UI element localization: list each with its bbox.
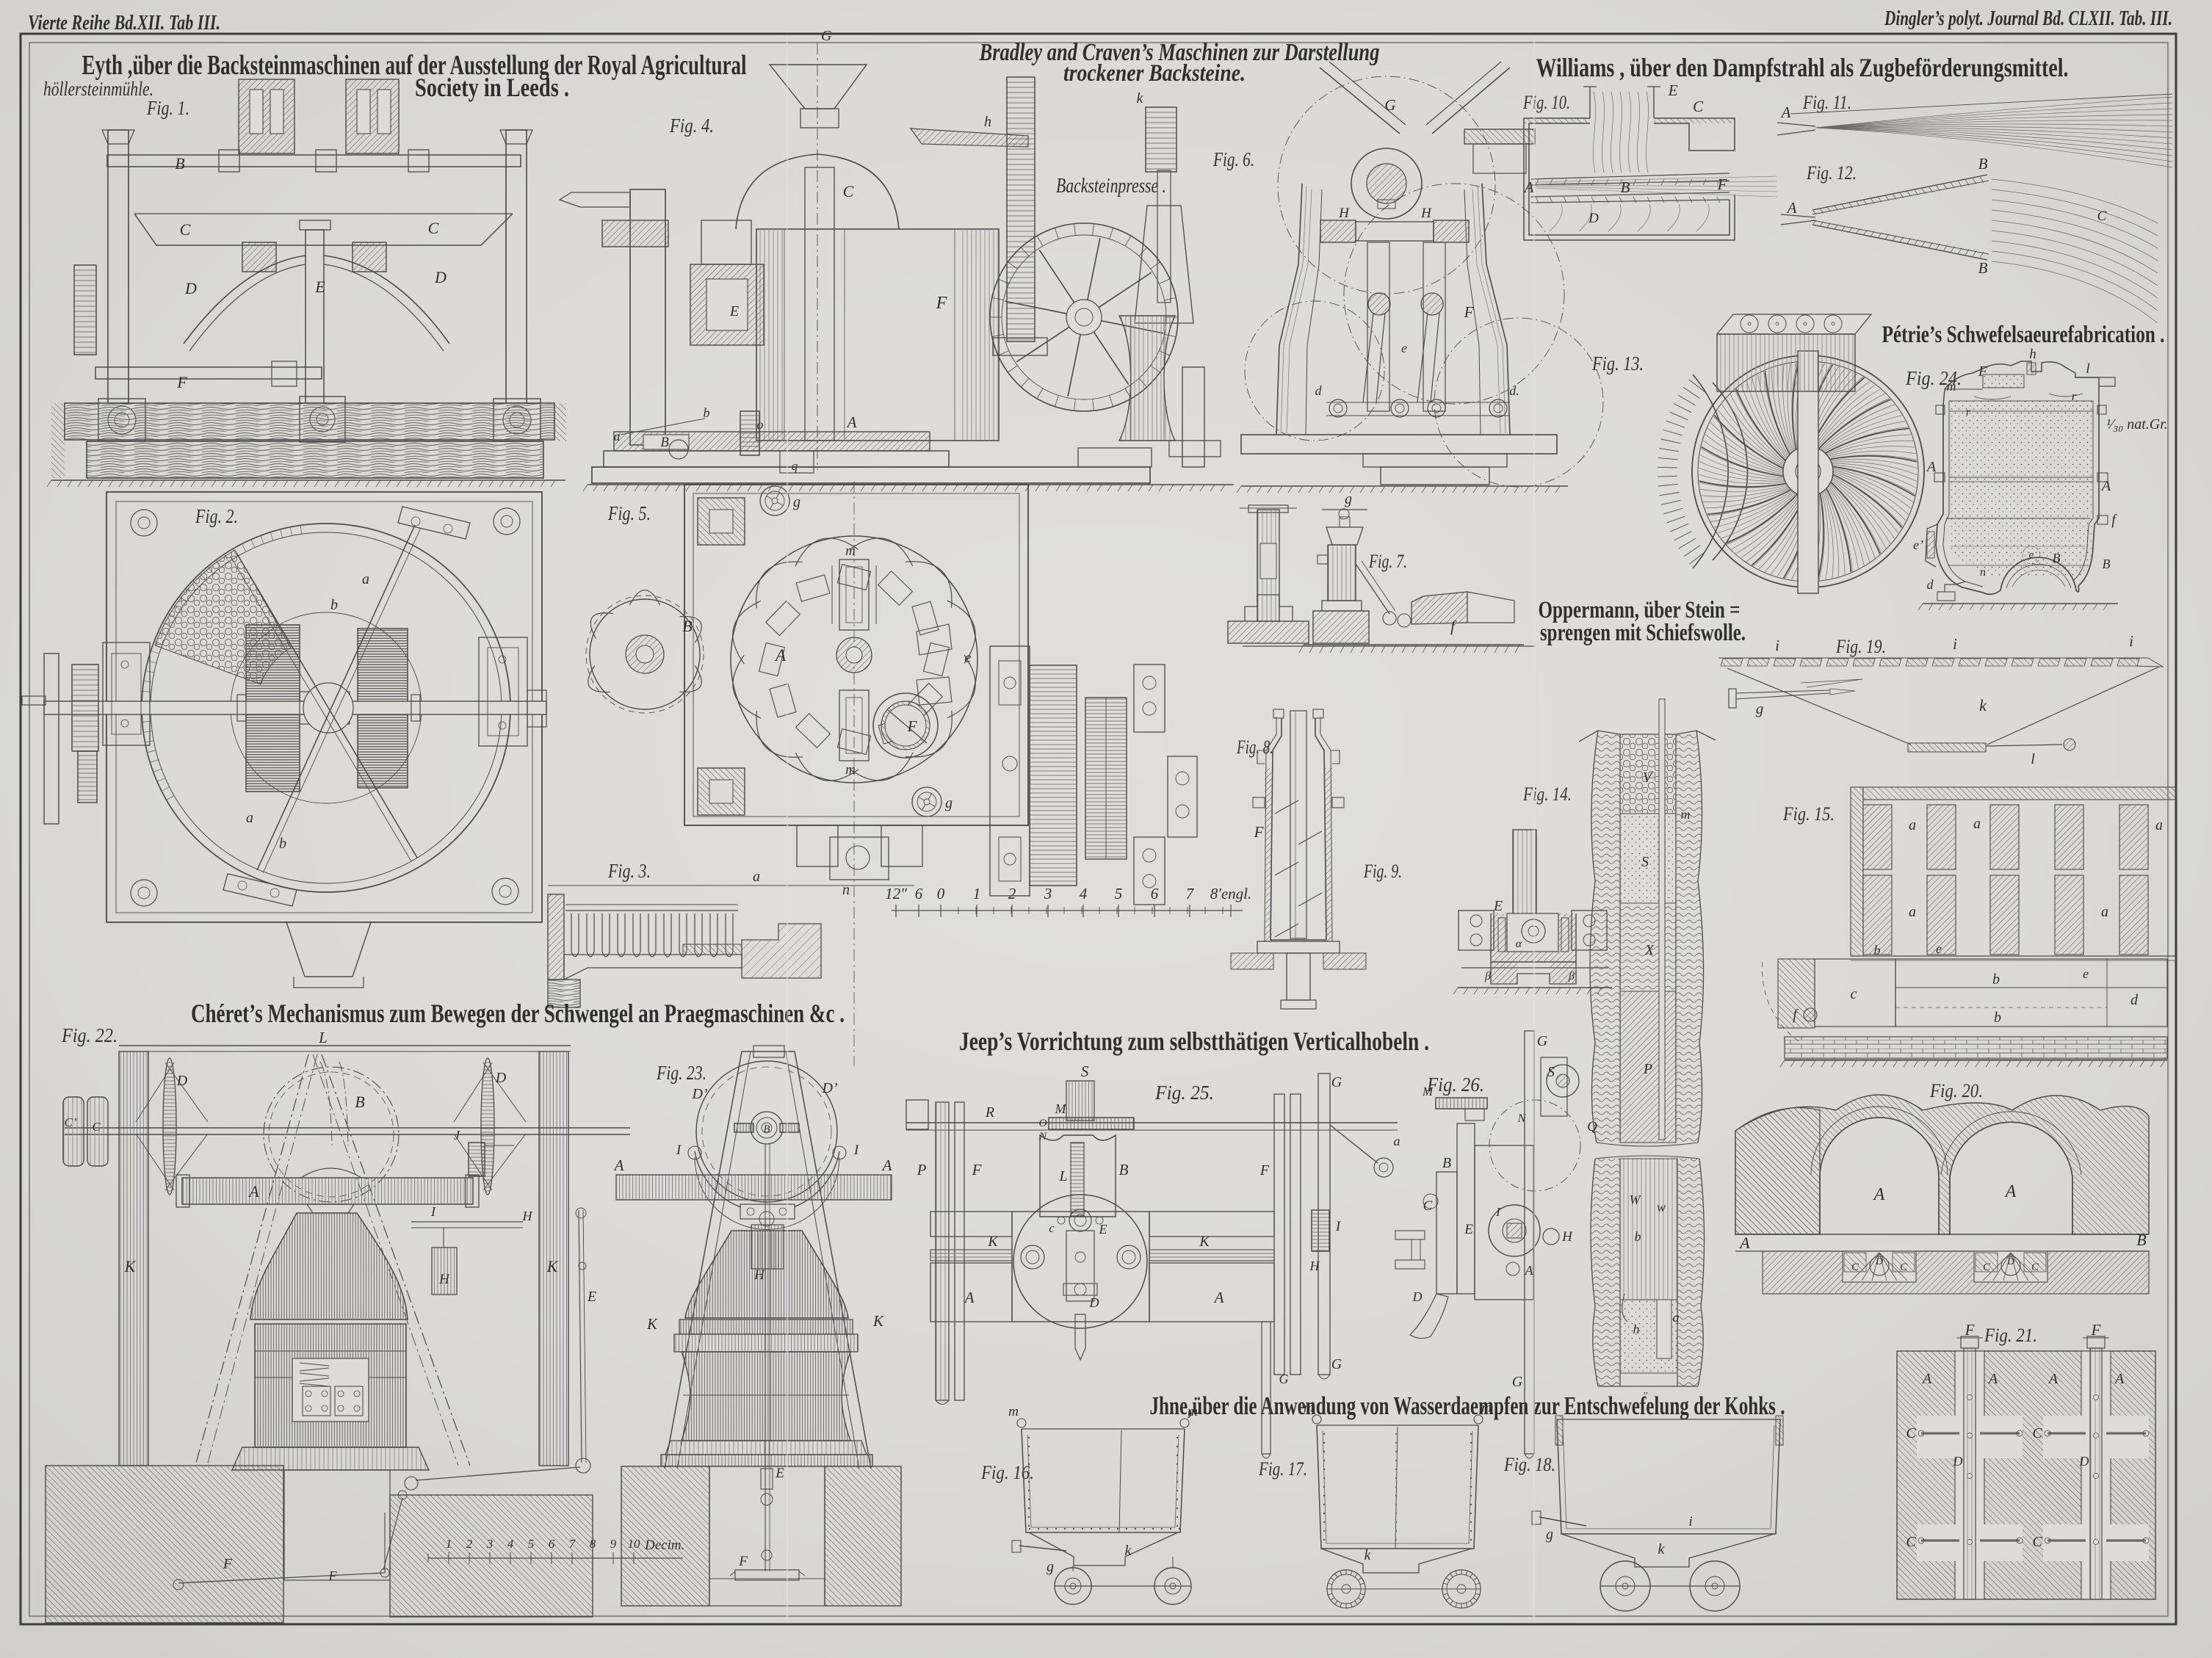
svg-text:A: A <box>1523 178 1534 196</box>
svg-text:D: D <box>1412 1289 1423 1304</box>
svg-text:S: S <box>1547 1064 1555 1080</box>
svg-text:Fig. 23.: Fig. 23. <box>656 1062 706 1084</box>
svg-text:c: c <box>1049 1221 1055 1235</box>
svg-text:Fig. 16.: Fig. 16. <box>980 1462 1034 1483</box>
svg-text:D: D <box>1953 1454 1963 1469</box>
svg-text:E: E <box>1493 898 1503 914</box>
svg-text:c: c <box>1851 986 1857 1002</box>
svg-text:X: X <box>1644 942 1655 958</box>
svg-text:Fig. 2.: Fig. 2. <box>195 505 238 527</box>
svg-text:Backsteinpresse .: Backsteinpresse . <box>1056 175 1166 198</box>
svg-text:C: C <box>1851 1261 1859 1273</box>
svg-text:Fig. 12.: Fig. 12. <box>1806 162 1857 184</box>
svg-text:Fig. 13.: Fig. 13. <box>1591 352 1644 374</box>
svg-text:C’: C’ <box>65 1115 77 1129</box>
svg-text:A: A <box>1921 1371 1932 1387</box>
svg-text:2: 2 <box>1008 885 1016 902</box>
svg-text:W: W <box>1630 1192 1642 1207</box>
svg-text:6: 6 <box>549 1537 555 1551</box>
svg-text:B: B <box>660 435 669 450</box>
svg-text:sprengen mit Schiefswolle.: sprengen mit Schiefswolle. <box>1540 620 1746 646</box>
svg-text:P: P <box>1643 1061 1652 1077</box>
svg-text:C: C <box>1693 98 1704 115</box>
svg-text:C: C <box>2031 1261 2039 1273</box>
svg-text:g: g <box>1047 1559 1054 1575</box>
svg-text:m: m <box>845 762 856 778</box>
svg-text:Fig. 7.: Fig. 7. <box>1368 551 1407 572</box>
svg-text:Fig. 11.: Fig. 11. <box>1802 92 1851 113</box>
svg-text:G: G <box>1331 1074 1342 1090</box>
svg-text:Pétrie’s Schwefelsaeurefabrica: Pétrie’s Schwefelsaeurefabrication . <box>1882 322 2165 348</box>
svg-text:l: l <box>2031 751 2035 767</box>
svg-text:D’: D’ <box>821 1080 837 1096</box>
svg-text:k: k <box>1658 1541 1666 1557</box>
svg-text:A: A <box>846 413 857 431</box>
svg-text:F: F <box>1717 175 1727 193</box>
svg-text:7: 7 <box>1186 885 1195 902</box>
svg-text:B: B <box>2103 557 2111 571</box>
svg-text:H: H <box>522 1209 533 1223</box>
svg-text:Chéret’s Mechanismus zum Bew: Chéret’s Mechanismus zum Bewegen der Sch… <box>191 999 845 1028</box>
svg-text:S: S <box>1081 1063 1089 1080</box>
svg-text:N: N <box>1517 1112 1527 1125</box>
svg-text:k: k <box>1365 1547 1372 1563</box>
svg-text:F: F <box>972 1161 982 1179</box>
svg-text:Fig. 22.: Fig. 22. <box>61 1024 118 1046</box>
svg-text:5: 5 <box>528 1537 535 1551</box>
svg-text:C: C <box>1423 1198 1433 1214</box>
svg-text:E: E <box>587 1289 596 1305</box>
svg-text:6: 6 <box>1151 885 1159 902</box>
svg-text:Williams , über den Dampfstrah: Williams , über den Dampfstrahl als Zugb… <box>1536 53 2069 82</box>
svg-text:b: b <box>1635 1229 1641 1244</box>
svg-text:A: A <box>964 1289 975 1306</box>
svg-text:A: A <box>1987 1371 1998 1387</box>
svg-text:2: 2 <box>466 1537 473 1551</box>
svg-text:C: C <box>180 220 191 239</box>
svg-text:D: D <box>1588 211 1599 226</box>
svg-text:6: 6 <box>915 885 923 902</box>
svg-text:b: b <box>704 405 710 420</box>
svg-text:L: L <box>1058 1168 1067 1184</box>
svg-text:G: G <box>1537 1033 1548 1049</box>
svg-text:d: d <box>1927 577 1934 592</box>
svg-text:D: D <box>1089 1295 1099 1310</box>
svg-text:w: w <box>1657 1200 1666 1214</box>
svg-text:K: K <box>987 1234 999 1250</box>
svg-text:B: B <box>2136 1231 2146 1249</box>
svg-text:Fig. 19.: Fig. 19. <box>1835 636 1886 657</box>
svg-text:n: n <box>1980 566 1986 579</box>
svg-text:d.: d. <box>1509 383 1519 398</box>
svg-text:B: B <box>175 154 184 173</box>
svg-text:E: E <box>1464 1222 1473 1237</box>
svg-text:Fig. 4.: Fig. 4. <box>669 115 714 137</box>
svg-text:F: F <box>1259 1162 1270 1179</box>
svg-text:12″: 12″ <box>885 885 907 902</box>
svg-text:A: A <box>1873 1185 1885 1204</box>
svg-text:A: A <box>1738 1234 1750 1252</box>
svg-text:Jhne,über die Anwendung von Wa: Jhne,über die Anwendung von Wasserdaempf… <box>1150 1391 1785 1420</box>
svg-text:A: A <box>2004 1182 2017 1201</box>
svg-text:M: M <box>1055 1101 1067 1116</box>
svg-text:H: H <box>1309 1259 1320 1273</box>
svg-text:Fig. 9.: Fig. 9. <box>1363 861 1402 882</box>
svg-text:A: A <box>1786 199 1797 217</box>
svg-text:C: C <box>843 182 854 200</box>
svg-text:D’: D’ <box>691 1086 707 1102</box>
svg-text:1: 1 <box>973 885 981 902</box>
svg-text:m: m <box>1008 1404 1019 1419</box>
svg-text:α: α <box>1516 938 1522 950</box>
svg-text:D: D <box>1875 1256 1883 1267</box>
svg-text:K: K <box>546 1257 559 1275</box>
svg-text:F: F <box>1464 303 1474 321</box>
svg-text:K: K <box>1199 1234 1210 1250</box>
svg-text:k: k <box>1979 696 1987 714</box>
svg-text:m: m <box>1188 1404 1198 1419</box>
svg-text:H: H <box>753 1267 765 1283</box>
svg-text:g: g <box>945 795 953 811</box>
svg-text:C: C <box>2032 1425 2042 1441</box>
svg-text:F: F <box>2091 1321 2101 1339</box>
svg-text:8: 8 <box>590 1537 596 1551</box>
svg-text:Fig. 15.: Fig. 15. <box>1782 803 1835 825</box>
svg-text:k: k <box>1125 1543 1132 1559</box>
svg-text:d: d <box>1315 383 1323 398</box>
svg-text:a: a <box>246 810 253 826</box>
svg-text:n: n <box>842 882 850 898</box>
svg-text:Fig. 14.: Fig. 14. <box>1522 783 1572 805</box>
svg-text:Fig. 18.: Fig. 18. <box>1503 1454 1555 1475</box>
svg-text:F: F <box>328 1568 338 1583</box>
svg-text:¹⁄₃₀ nat.Gr.: ¹⁄₃₀ nat.Gr. <box>2106 416 2168 432</box>
svg-text:Jeep’s Vorrichtung zum selbs: Jeep’s Vorrichtung zum selbstthätigen Ve… <box>959 1027 1429 1056</box>
svg-text:e’: e’ <box>1913 537 1923 552</box>
svg-text:A: A <box>613 1156 624 1174</box>
svg-text:A: A <box>2047 1371 2059 1387</box>
svg-text:G: G <box>1279 1372 1289 1386</box>
svg-text:E: E <box>314 278 325 296</box>
svg-text:C: C <box>428 219 439 237</box>
svg-text:trockener Backsteine.: trockener Backsteine. <box>1063 60 1246 87</box>
svg-text:b: b <box>1994 1010 2001 1026</box>
svg-text:D: D <box>434 268 447 286</box>
svg-text:4: 4 <box>1080 885 1088 902</box>
svg-text:D: D <box>184 279 197 297</box>
svg-text:a: a <box>614 429 621 444</box>
svg-text:K: K <box>646 1315 658 1333</box>
svg-text:A: A <box>2114 1371 2125 1387</box>
svg-text:F: F <box>176 373 187 391</box>
svg-text:E: E <box>775 1466 784 1481</box>
svg-text:H: H <box>1561 1229 1573 1245</box>
svg-text:F: F <box>1978 363 1988 380</box>
svg-text:Fig. 17.: Fig. 17. <box>1258 1458 1307 1480</box>
svg-text:4: 4 <box>507 1537 514 1551</box>
svg-text:m: m <box>1681 807 1691 822</box>
svg-text:C: C <box>1906 1425 1916 1441</box>
svg-text:A: A <box>2100 478 2111 494</box>
svg-text:q: q <box>792 459 798 473</box>
svg-text:S: S <box>1641 854 1649 870</box>
svg-text:C: C <box>2032 1534 2042 1550</box>
svg-text:M: M <box>1422 1085 1434 1098</box>
svg-text:K: K <box>872 1312 884 1330</box>
svg-text:r: r <box>2072 389 2077 403</box>
svg-text:0: 0 <box>937 885 945 902</box>
svg-text:B: B <box>355 1093 364 1111</box>
svg-text:a: a <box>753 869 760 885</box>
svg-text:a: a <box>2101 904 2108 920</box>
svg-text:G: G <box>1331 1356 1342 1372</box>
svg-text:e: e <box>2029 549 2034 561</box>
svg-text:D: D <box>2006 1256 2014 1267</box>
svg-text:H: H <box>438 1272 450 1287</box>
svg-text:Fig. 21.: Fig. 21. <box>1984 1325 2037 1346</box>
svg-text:A: A <box>247 1182 259 1201</box>
svg-text:O: O <box>1039 1118 1047 1129</box>
svg-text:r: r <box>1966 406 1971 419</box>
svg-text:b: b <box>279 836 286 852</box>
svg-text:β: β <box>1484 970 1491 982</box>
svg-text:B: B <box>1978 155 1988 173</box>
svg-text:Fig. 20.: Fig. 20. <box>1929 1080 1983 1101</box>
svg-text:a: a <box>2155 817 2163 833</box>
svg-text:5: 5 <box>1115 885 1123 902</box>
svg-text:a: a <box>1973 816 1981 832</box>
svg-text:I: I <box>430 1204 436 1219</box>
svg-text:C: C <box>1983 1261 1991 1273</box>
svg-text:b: b <box>330 597 338 613</box>
svg-text:B: B <box>2053 551 2061 565</box>
svg-text:i: i <box>2129 632 2133 650</box>
svg-text:E: E <box>1668 82 1678 99</box>
svg-text:L: L <box>318 1029 328 1046</box>
svg-text:Vierte Reihe Bd.XII. Tab III.: Vierte Reihe Bd.XII. Tab III. <box>28 12 220 35</box>
svg-text:a: a <box>362 571 369 587</box>
svg-text:9: 9 <box>610 1537 617 1551</box>
svg-text:Fig. 25.: Fig. 25. <box>1154 1082 1214 1104</box>
svg-text:8′engl.: 8′engl. <box>1210 885 1252 902</box>
svg-text:B: B <box>682 617 692 635</box>
svg-text:m: m <box>1481 1400 1492 1416</box>
svg-text:R: R <box>985 1104 994 1121</box>
svg-text:Eyth ,über die Backsteinmaschi: Eyth ,über die Backsteinmaschinen auf de… <box>82 50 747 81</box>
svg-text:Fig. 1.: Fig. 1. <box>146 97 189 119</box>
svg-text:B: B <box>763 1123 770 1135</box>
svg-text:a: a <box>1909 904 1916 920</box>
svg-text:β: β <box>1568 970 1575 982</box>
svg-text:Fig. 6.: Fig. 6. <box>1212 148 1254 170</box>
svg-text:B: B <box>1119 1161 1129 1179</box>
svg-text:h: h <box>984 114 991 130</box>
svg-text:Fig. 26.: Fig. 26. <box>1426 1074 1484 1096</box>
svg-text:a: a <box>1394 1134 1400 1148</box>
svg-text:1: 1 <box>446 1537 452 1551</box>
svg-text:D: D <box>2079 1454 2089 1469</box>
svg-text:i: i <box>1688 1514 1692 1530</box>
svg-text:i: i <box>1775 637 1779 654</box>
svg-text:F: F <box>223 1556 233 1572</box>
svg-text:Q: Q <box>1587 1119 1597 1134</box>
svg-text:m: m <box>845 543 856 559</box>
svg-text:C: C <box>1906 1534 1916 1550</box>
svg-text:K: K <box>124 1257 137 1275</box>
svg-text:m: m <box>1947 379 1956 394</box>
svg-text:A: A <box>774 646 787 665</box>
svg-text:G: G <box>821 28 832 44</box>
svg-text:g: g <box>793 494 800 510</box>
svg-text:d: d <box>2130 992 2139 1008</box>
svg-text:E: E <box>1099 1222 1107 1237</box>
svg-text:J: J <box>454 1128 460 1143</box>
svg-text:h: h <box>1633 1322 1640 1336</box>
svg-text:i: i <box>1953 635 1957 653</box>
svg-text:e: e <box>1401 341 1407 355</box>
svg-text:C: C <box>2097 209 2107 224</box>
svg-text:H: H <box>1420 206 1432 221</box>
svg-text:g: g <box>1345 491 1352 507</box>
svg-text:D: D <box>495 1070 507 1086</box>
svg-text:D: D <box>176 1073 188 1089</box>
svg-text:C: C <box>92 1120 101 1134</box>
svg-text:F: F <box>1254 823 1264 841</box>
svg-text:A: A <box>1525 1263 1534 1278</box>
svg-text:a: a <box>1673 1310 1680 1325</box>
svg-text:3: 3 <box>486 1537 494 1551</box>
svg-text:e: e <box>965 650 972 666</box>
svg-text:e: e <box>2083 966 2089 981</box>
svg-text:B: B <box>1442 1155 1451 1171</box>
svg-text:B: B <box>1978 259 1988 277</box>
svg-text:H: H <box>1338 206 1350 221</box>
svg-text:A: A <box>1926 459 1937 475</box>
svg-text:b: b <box>1992 971 2000 988</box>
svg-text:A: A <box>1780 104 1791 121</box>
svg-text:A: A <box>1213 1289 1224 1306</box>
svg-text:3: 3 <box>1044 885 1052 902</box>
svg-text:F: F <box>936 294 947 313</box>
svg-text:g: g <box>1756 700 1764 717</box>
svg-text:B: B <box>1621 178 1630 196</box>
svg-text:m: m <box>1304 1400 1314 1416</box>
svg-text:P: P <box>917 1161 927 1179</box>
svg-text:k: k <box>1137 90 1144 106</box>
svg-text:Dingler’s polyt. Journal Bd. C: Dingler’s polyt. Journal Bd. CLXII. Tab.… <box>1884 7 2172 30</box>
svg-text:Society in Leeds .: Society in Leeds . <box>415 73 569 102</box>
svg-text:h: h <box>2029 347 2036 362</box>
svg-text:g: g <box>1546 1527 1553 1543</box>
svg-text:F: F <box>738 1554 748 1569</box>
svg-text:G: G <box>1384 96 1395 114</box>
svg-text:l: l <box>2086 361 2089 377</box>
svg-text:A: A <box>881 1156 892 1174</box>
svg-text:E: E <box>729 303 739 319</box>
svg-text:Fig. 3.: Fig. 3. <box>607 860 651 882</box>
svg-text:C: C <box>1900 1261 1908 1273</box>
svg-text:Fig. 5.: Fig. 5. <box>607 502 651 524</box>
svg-text:F: F <box>907 717 917 735</box>
svg-text:b: b <box>1874 943 1881 957</box>
svg-text:a: a <box>1909 817 1916 833</box>
svg-text:G: G <box>1512 1374 1523 1390</box>
svg-text:F: F <box>1965 1321 1975 1339</box>
svg-text:höllersteinmühle.: höllersteinmühle. <box>43 78 153 100</box>
svg-text:e: e <box>1936 941 1942 956</box>
svg-text:Fig. 10.: Fig. 10. <box>1522 92 1570 113</box>
